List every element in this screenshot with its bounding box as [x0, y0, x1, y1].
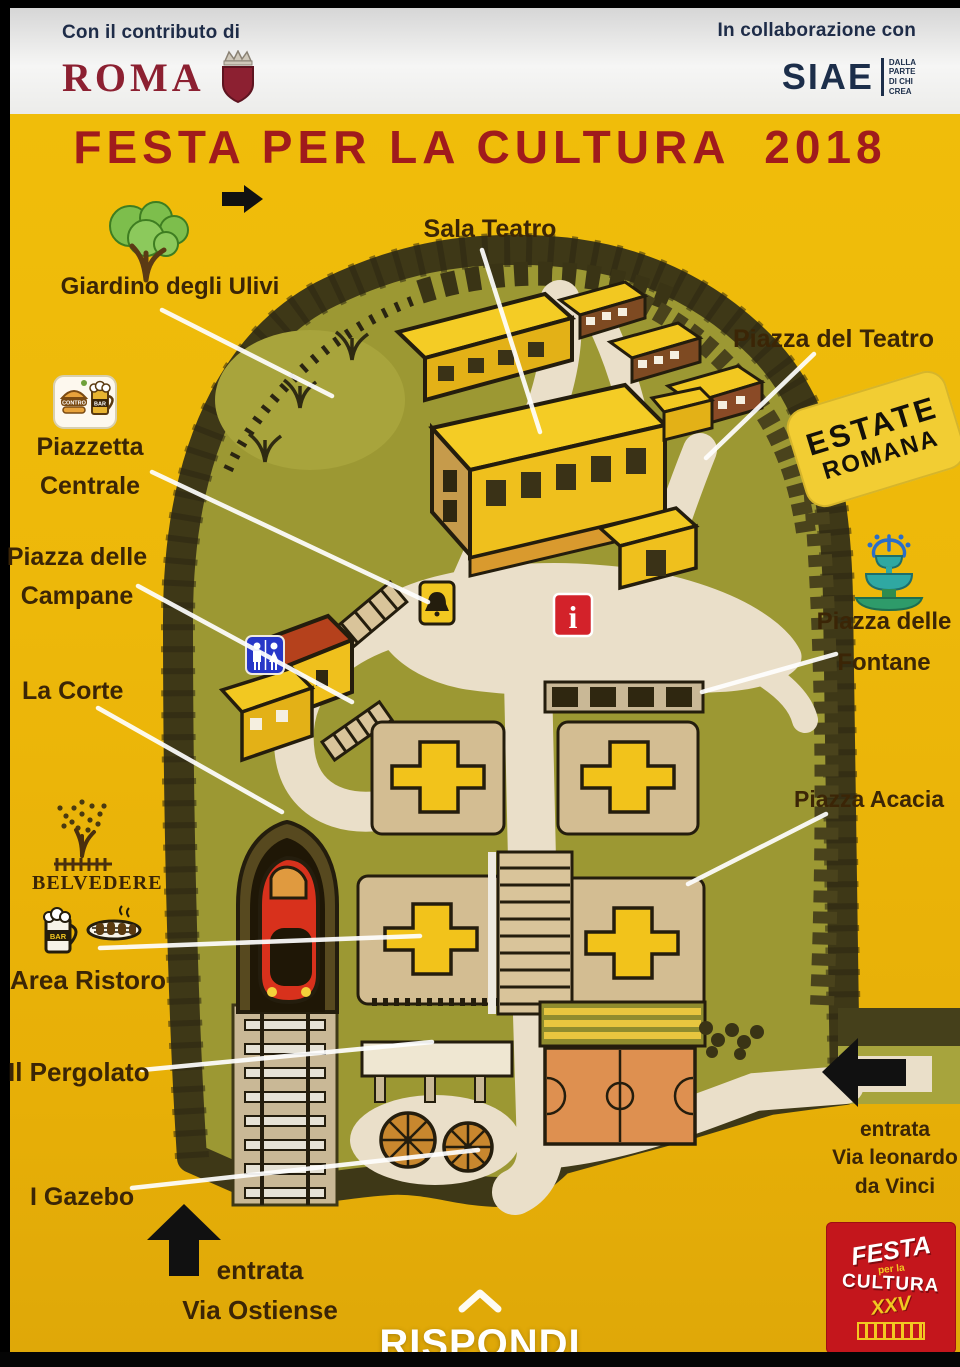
bottom-black-bar — [0, 1352, 960, 1367]
label-giardino-degli-ulivi: Giardino degli Ulivi — [44, 268, 296, 305]
label-il-pergolato: Il Pergolato — [8, 1052, 150, 1092]
label-piazza-delle-campane: Piazza delle Campane — [6, 538, 148, 616]
bar-mug-icon: BAR — [44, 908, 76, 952]
title-arrow-icon — [222, 185, 263, 213]
label-belvedere: BELVEDERE — [32, 872, 154, 894]
info-icon: i — [554, 594, 592, 636]
chevron-up-icon[interactable] — [457, 1288, 503, 1314]
label-piazzetta-centrale: Piazzetta Centrale — [30, 428, 150, 506]
controbar-bar-text: BAR — [94, 402, 106, 408]
basketball-court — [540, 1002, 705, 1144]
central-staircase — [488, 852, 572, 1014]
bar-mug-text: BAR — [50, 932, 67, 941]
controbar-text: CONTRO — [62, 401, 87, 407]
label-piazza-del-teatro: Piazza del Teatro — [733, 320, 934, 359]
label-sala-teatro: Sala Teatro — [390, 210, 590, 249]
festival-map-poster: Con il contributo di ROMA In collaborazi… — [0, 0, 960, 1367]
controbar-icon: CONTRO BAR — [54, 376, 116, 428]
train — [260, 858, 318, 1002]
belvedere-icon — [54, 799, 112, 871]
fountain-icon — [856, 535, 922, 611]
label-i-gazebo: I Gazebo — [30, 1178, 134, 1217]
page-title: FESTA PER LA CULTURA 2018 — [0, 120, 960, 174]
label-la-corte: La Corte — [22, 672, 123, 711]
label-piazza-delle-fontane: Piazza delle Fontane — [816, 602, 952, 684]
label-piazza-acacia: Piazza Acacia — [794, 782, 944, 818]
stall-row — [545, 682, 703, 712]
grill-icon — [88, 906, 140, 939]
label-area-ristoro: Area Ristoro — [10, 960, 166, 1000]
info-glyph: i — [569, 599, 578, 635]
label-entrata-via-leonardo-da-vinci: entrata Via leonardo da Vinci — [832, 1116, 958, 1201]
